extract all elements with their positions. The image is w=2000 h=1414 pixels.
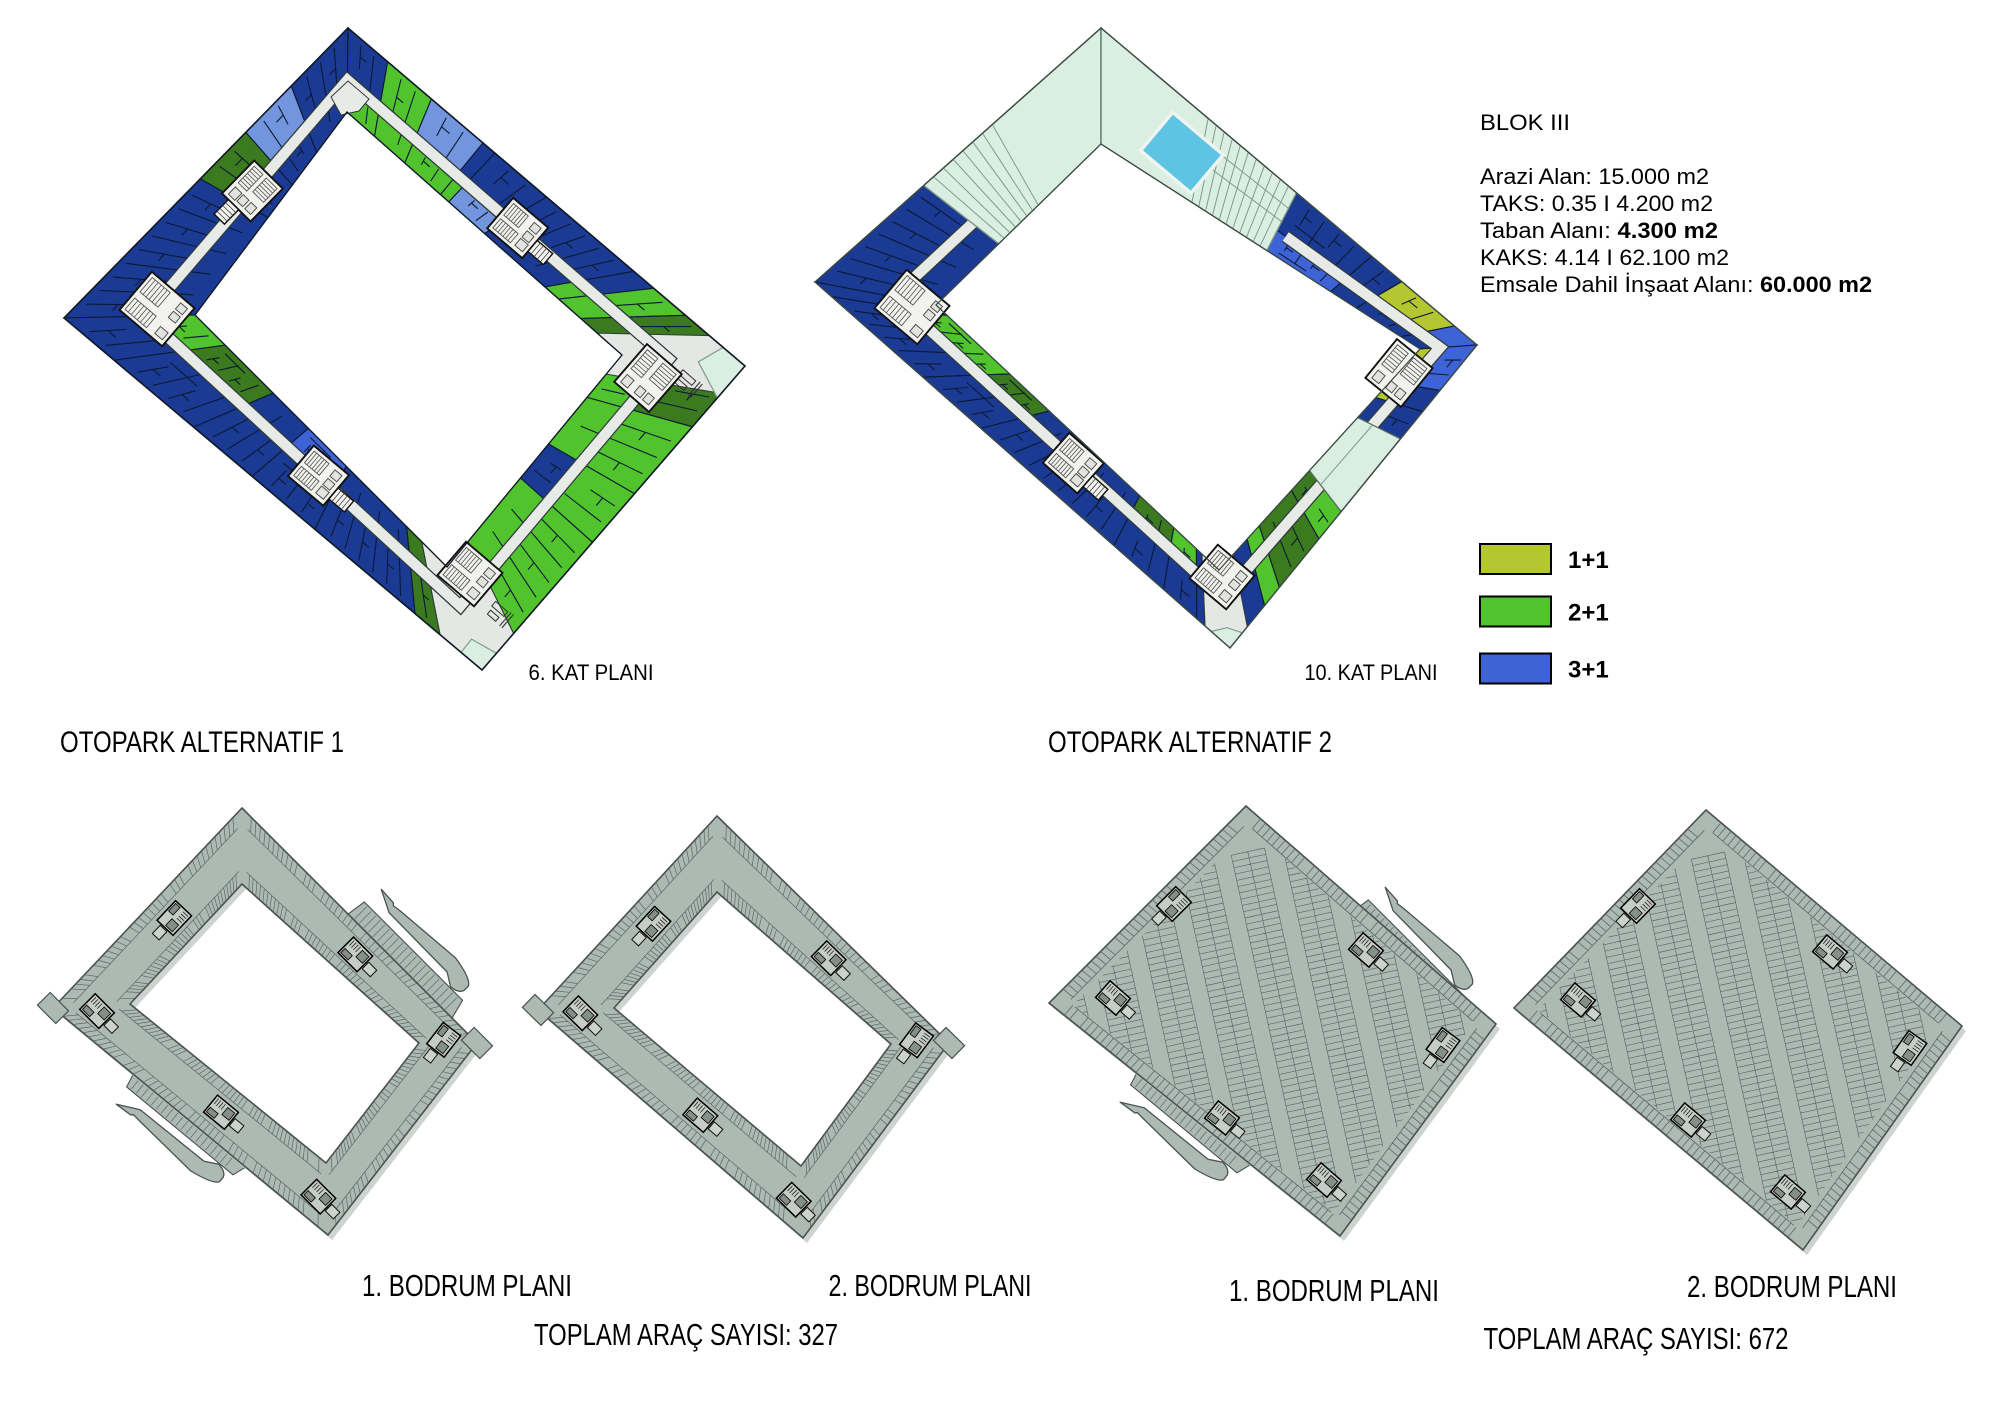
svg-text:3+1: 3+1 [1568,657,1609,684]
svg-text:TAKS: 0.35 I 4.200 m2: TAKS: 0.35 I 4.200 m2 [1480,191,1713,216]
svg-text:1. BODRUM PLANI: 1. BODRUM PLANI [362,1268,572,1303]
svg-text:2. BODRUM PLANI: 2. BODRUM PLANI [829,1268,1032,1303]
svg-text:10. KAT PLANI: 10. KAT PLANI [1305,660,1438,685]
svg-text:TOPLAM ARAÇ SAYISI: 327: TOPLAM ARAÇ SAYISI: 327 [534,1317,838,1352]
svg-text:KAKS: 4.14 I 62.100 m2: KAKS: 4.14 I 62.100 m2 [1480,245,1729,270]
svg-text:OTOPARK ALTERNATIF 2: OTOPARK ALTERNATIF 2 [1048,726,1332,759]
svg-text:Taban Alanı: 4.300 m2: Taban Alanı: 4.300 m2 [1480,218,1718,243]
svg-text:2. BODRUM PLANI: 2. BODRUM PLANI [1687,1269,1897,1304]
svg-text:TOPLAM ARAÇ SAYISI: 672: TOPLAM ARAÇ SAYISI: 672 [1484,1321,1789,1356]
svg-text:2+1: 2+1 [1568,600,1609,627]
svg-text:Emsale Dahil İnşaat Alanı: 60.: Emsale Dahil İnşaat Alanı: 60.000 m2 [1480,272,1872,297]
svg-text:OTOPARK ALTERNATIF 1: OTOPARK ALTERNATIF 1 [60,726,344,759]
svg-text:Arazi Alan: 15.000 m2: Arazi Alan: 15.000 m2 [1480,164,1709,189]
svg-text:1+1: 1+1 [1568,547,1609,574]
svg-text:6. KAT PLANI: 6. KAT PLANI [529,660,654,685]
svg-text:1. BODRUM PLANI: 1. BODRUM PLANI [1229,1273,1439,1308]
svg-text:BLOK III: BLOK III [1480,110,1570,135]
